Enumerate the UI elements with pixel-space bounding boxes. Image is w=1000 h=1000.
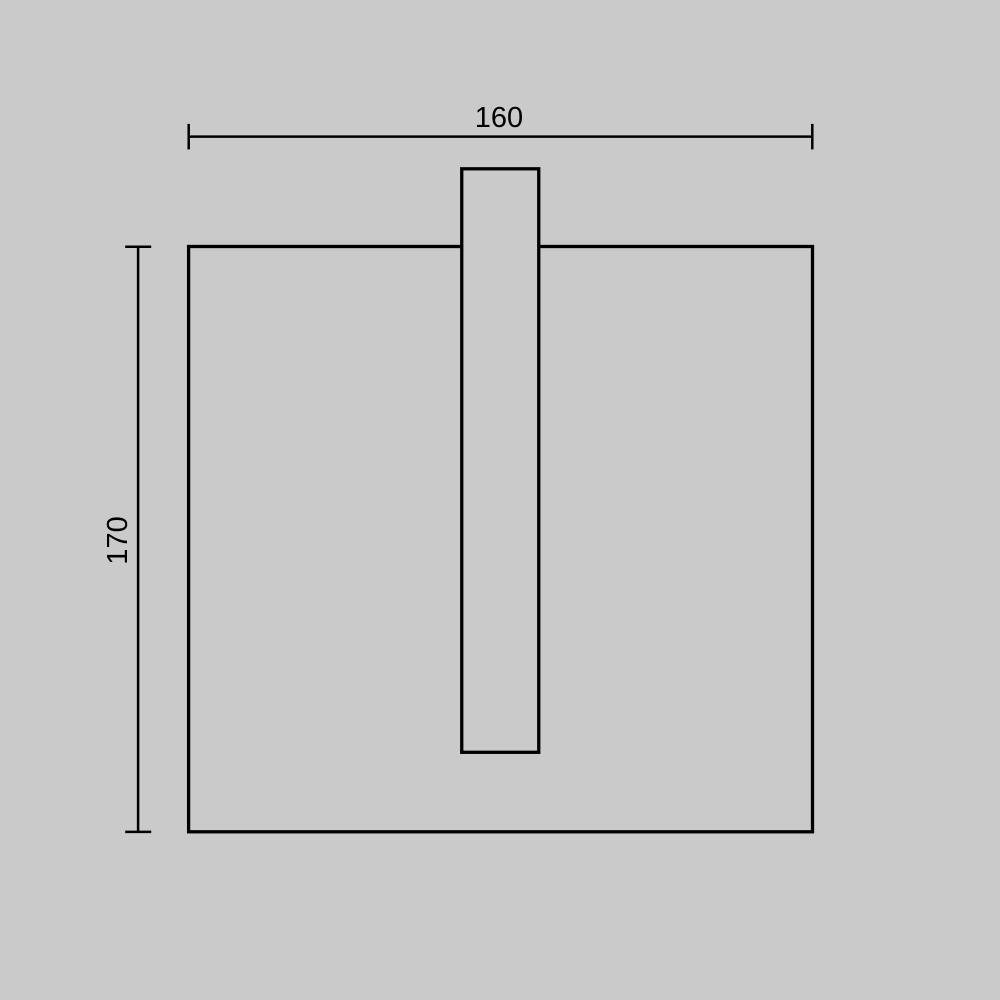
svg-text:170: 170 xyxy=(102,516,134,564)
svg-text:160: 160 xyxy=(475,102,523,134)
